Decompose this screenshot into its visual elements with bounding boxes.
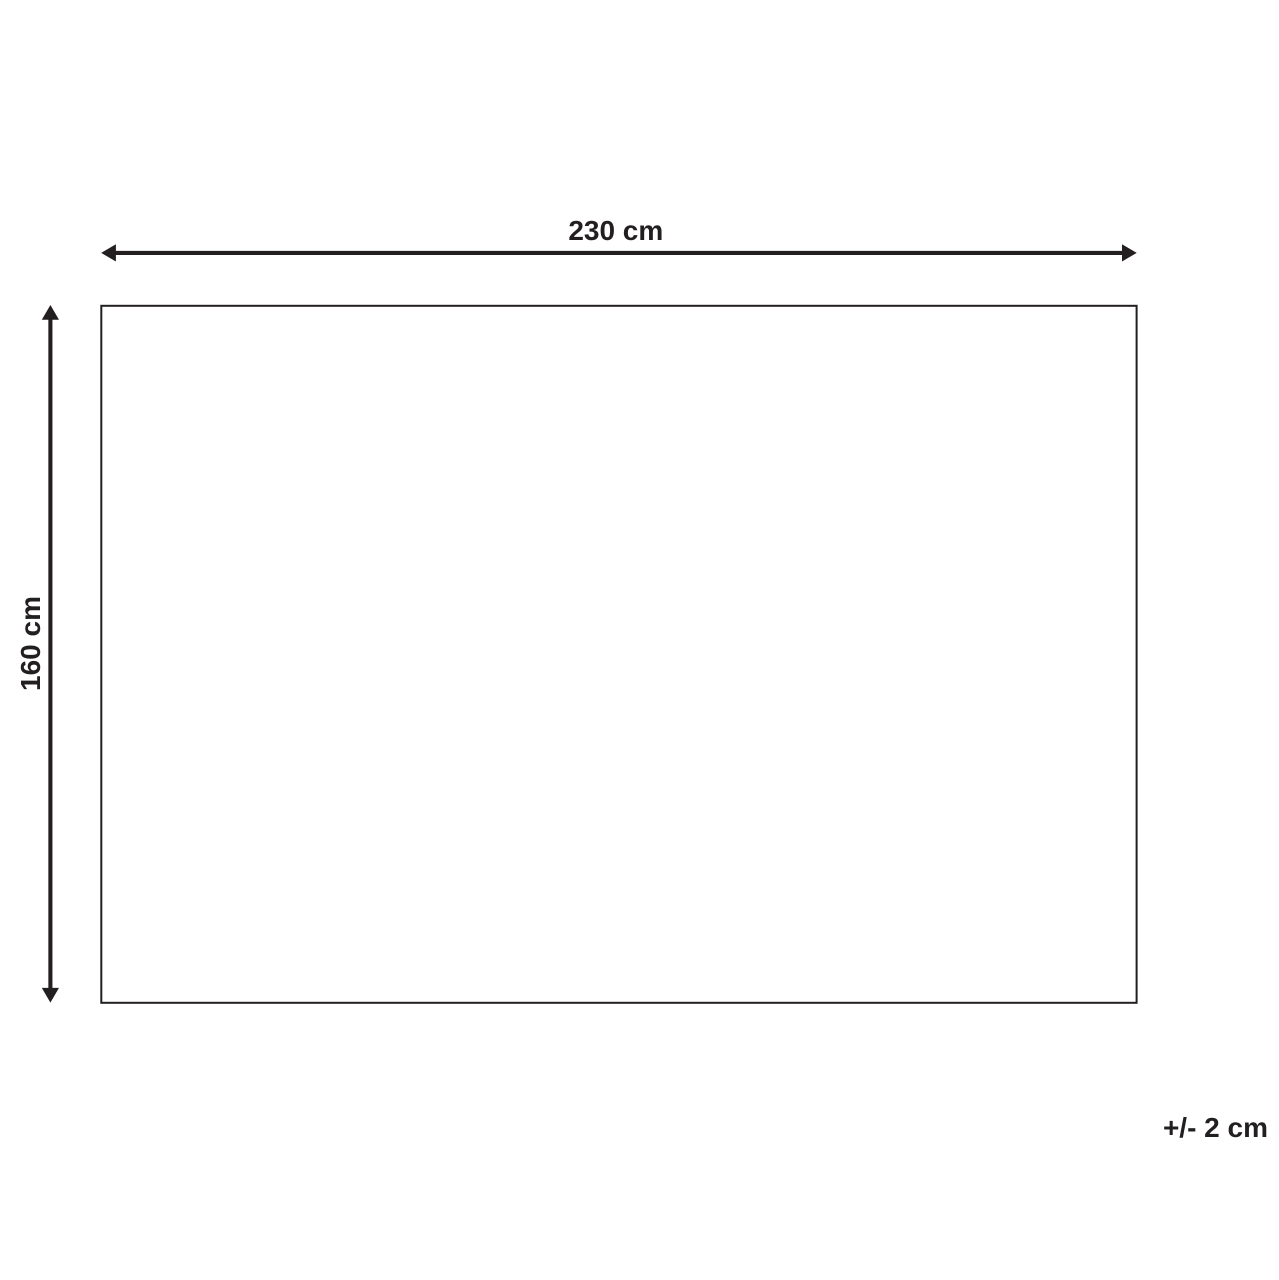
svg-text:+/- 2 cm: +/- 2 cm (1163, 1112, 1268, 1143)
svg-text:230 cm: 230 cm (568, 215, 663, 246)
svg-text:160 cm: 160 cm (15, 596, 46, 691)
